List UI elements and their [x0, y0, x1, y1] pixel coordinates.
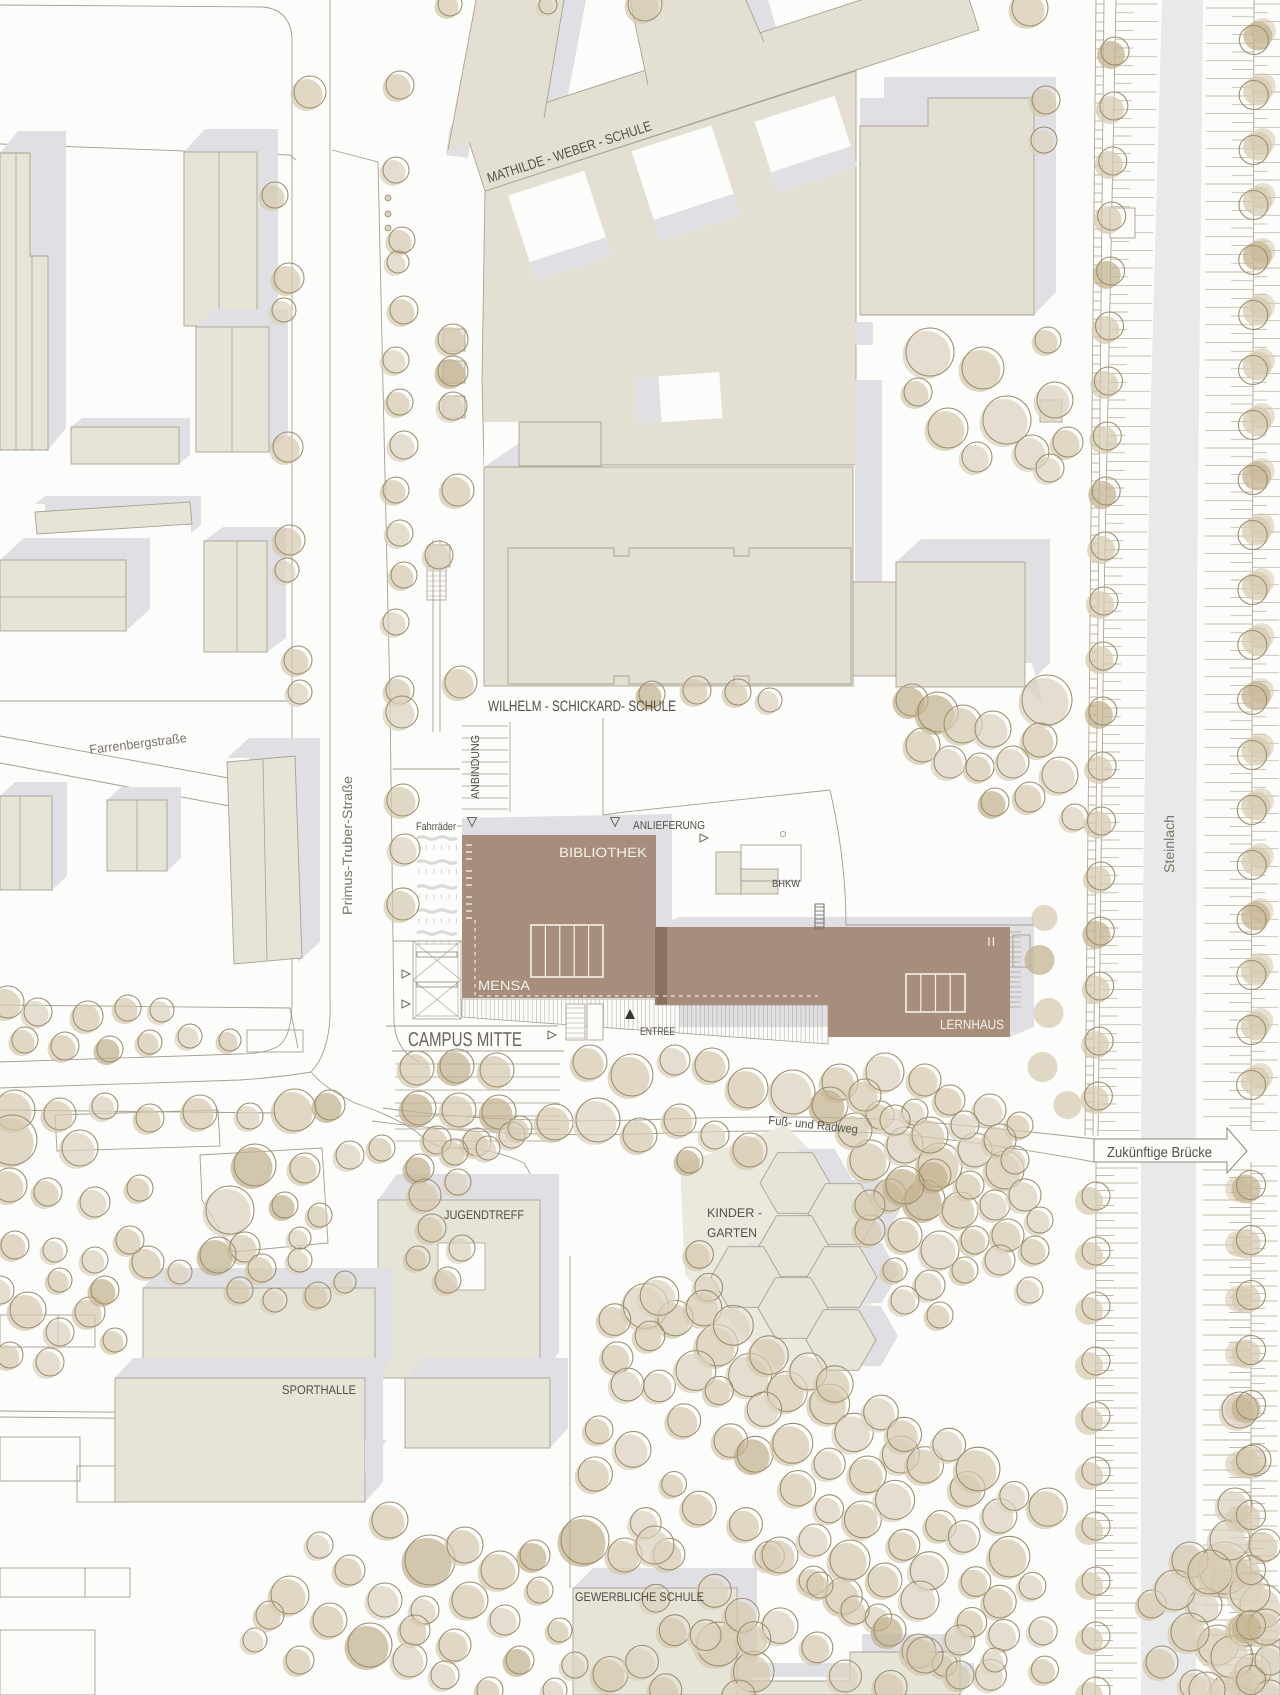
svg-text:ENTREE: ENTREE — [640, 1026, 675, 1038]
svg-text:BIBLIOTHEK: BIBLIOTHEK — [559, 845, 647, 860]
svg-text:ANBINDUNG: ANBINDUNG — [470, 735, 482, 799]
svg-text:KINDER -: KINDER - — [707, 1206, 762, 1220]
svg-text:GARTEN: GARTEN — [707, 1226, 757, 1240]
svg-text:WILHELM - SCHICKARD- SCHULE: WILHELM - SCHICKARD- SCHULE — [488, 698, 676, 715]
svg-text:Fahrräder: Fahrräder — [416, 821, 456, 833]
svg-text:Zukünftige Brücke: Zukünftige Brücke — [1107, 1145, 1212, 1161]
svg-text:CAMPUS MITTE: CAMPUS MITTE — [408, 1029, 522, 1051]
svg-text:BHKW: BHKW — [772, 878, 800, 890]
svg-text:II: II — [987, 934, 996, 949]
svg-text:Steinlach: Steinlach — [1161, 815, 1177, 873]
svg-text:ANLIEFERUNG: ANLIEFERUNG — [633, 820, 705, 832]
svg-text:LERNHAUS: LERNHAUS — [940, 1017, 1004, 1032]
svg-text:Primus-Truber-Straße: Primus-Truber-Straße — [340, 776, 355, 915]
svg-text:SPORTHALLE: SPORTHALLE — [282, 1383, 356, 1397]
svg-text:JUGENDTREFF: JUGENDTREFF — [444, 1208, 524, 1222]
svg-text:GEWERBLICHE SCHULE: GEWERBLICHE SCHULE — [575, 1590, 704, 1604]
svg-text:MENSA: MENSA — [478, 978, 530, 993]
